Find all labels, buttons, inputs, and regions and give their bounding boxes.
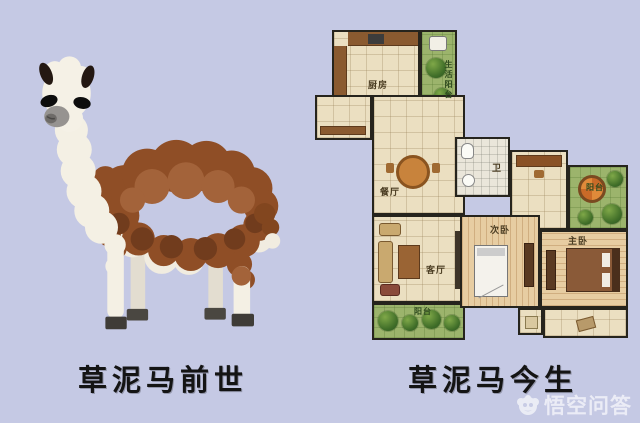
room-living: 客厅 xyxy=(372,215,465,303)
alpaca-figurine-image xyxy=(16,32,288,340)
chair-icon xyxy=(534,170,544,178)
balcony-deco-icon xyxy=(576,316,596,332)
coffee-table-icon xyxy=(398,245,420,279)
plant-icon xyxy=(402,315,418,331)
room-label-master-bedroom: 主卧 xyxy=(568,236,588,246)
room-label-bathroom: 卫 xyxy=(492,163,502,173)
wardrobe-icon xyxy=(546,250,556,290)
washing-machine-icon xyxy=(429,36,447,51)
room-bathroom: 卫 xyxy=(455,137,510,197)
armchair-icon xyxy=(380,284,400,296)
bed-icon xyxy=(566,248,620,292)
room-label-kitchen: 厨房 xyxy=(368,80,388,90)
room-label-utility-balcony: 生活阳台 xyxy=(443,60,453,100)
room-label-dining: 餐厅 xyxy=(380,187,400,197)
plant-icon xyxy=(444,315,460,331)
headboard-icon xyxy=(612,249,619,291)
plant-icon xyxy=(607,171,623,187)
toilet-icon xyxy=(461,143,474,159)
sink-icon xyxy=(462,174,475,187)
pillow-icon xyxy=(477,248,505,256)
watermark: 悟空问答 xyxy=(515,390,632,420)
entry-bench-icon xyxy=(320,126,366,135)
meme-image: 厨房 生活阳台 餐厅 卫 xyxy=(0,0,640,423)
room-living-balcony: 阳台 xyxy=(372,303,465,340)
room-label-living: 客厅 xyxy=(426,265,446,275)
plant-icon xyxy=(378,311,398,331)
pillow-icon xyxy=(602,253,610,267)
dining-table-icon xyxy=(396,155,430,189)
bay-window-seat-icon xyxy=(525,316,538,329)
floor-plan: 厨房 生活阳台 餐厅 卫 xyxy=(310,16,632,350)
caption-left: 草泥马前世 xyxy=(78,357,248,399)
bay-window xyxy=(518,308,543,335)
room-label-bedroom-second: 次卧 xyxy=(490,225,510,235)
stove-icon xyxy=(368,34,384,44)
room-master-balcony xyxy=(543,308,628,338)
room-label-leisure-balcony: 阳台 xyxy=(586,183,604,193)
chair-icon xyxy=(386,163,394,173)
room-leisure-balcony: 阳台 xyxy=(568,165,628,230)
blanket-fold xyxy=(478,284,503,298)
bed-icon xyxy=(474,245,508,297)
plant-icon xyxy=(578,210,593,225)
room-bedroom-second: 次卧 xyxy=(460,215,540,308)
watermark-text: 悟空问答 xyxy=(544,390,632,420)
wardrobe-icon xyxy=(524,243,534,287)
room-entry-hall xyxy=(315,95,372,140)
pillow-icon xyxy=(602,273,610,287)
wukong-logo-icon xyxy=(515,392,541,418)
kitchen-side-counter-icon xyxy=(334,46,347,102)
chair-icon xyxy=(432,163,440,173)
armchair-icon xyxy=(379,223,401,236)
desk-icon xyxy=(516,155,562,167)
sofa-icon xyxy=(378,241,393,283)
room-label-living-balcony: 阳台 xyxy=(414,307,432,317)
room-master-bedroom: 主卧 xyxy=(540,230,628,308)
plant-icon xyxy=(602,204,622,224)
room-dining: 餐厅 xyxy=(372,95,465,215)
alpaca-illustration xyxy=(16,32,288,340)
